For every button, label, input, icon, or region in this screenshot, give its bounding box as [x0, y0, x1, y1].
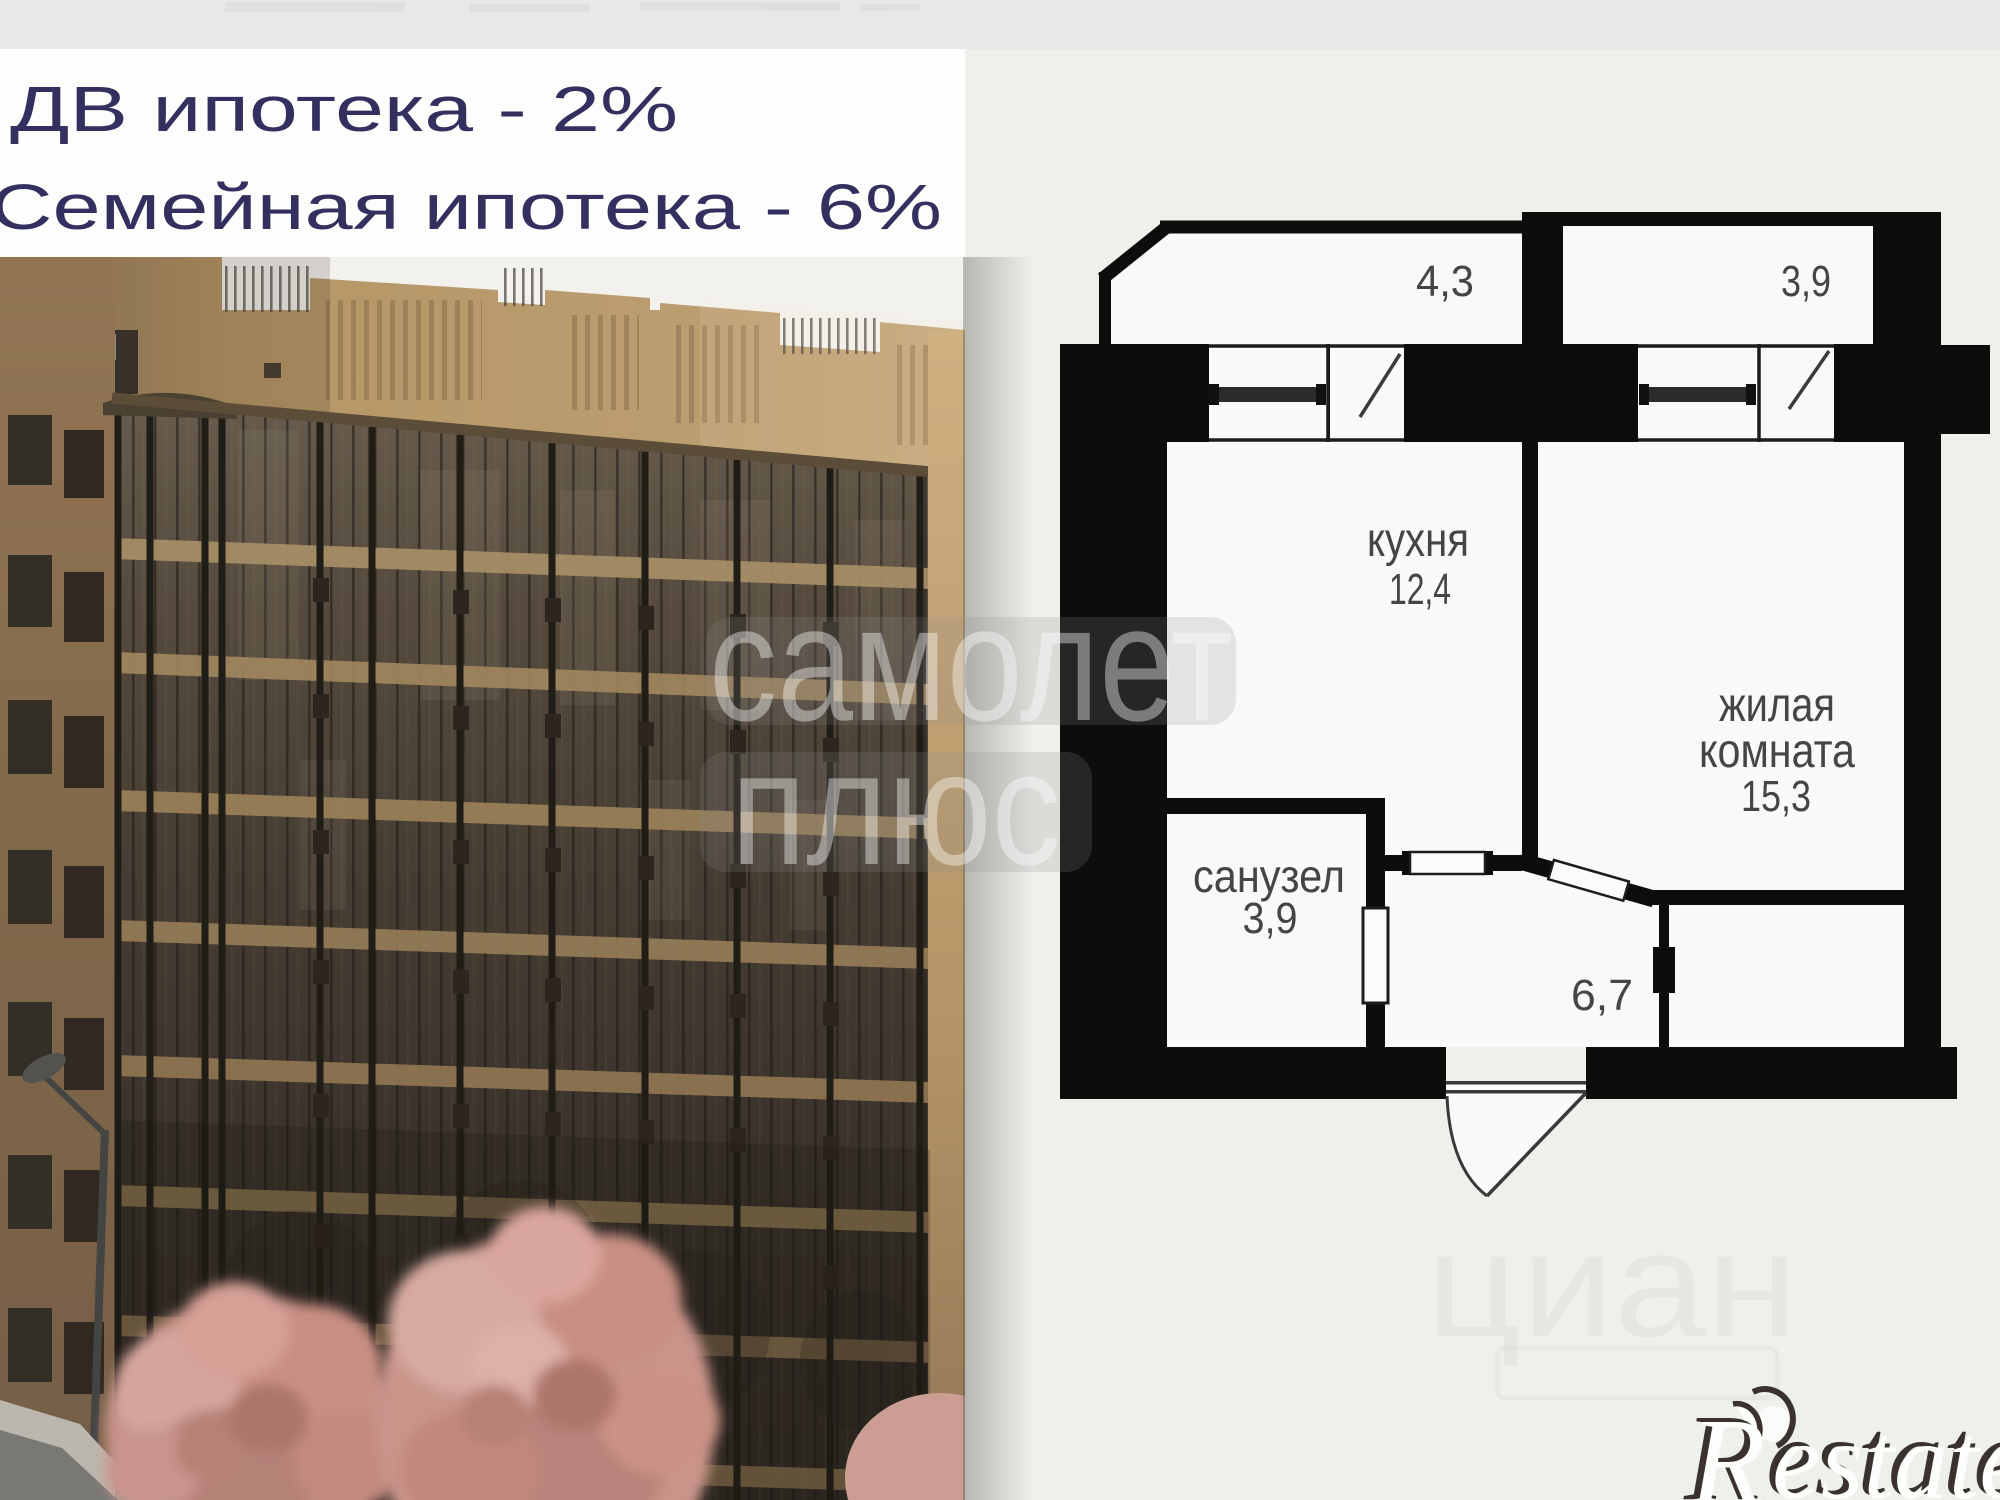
svg-text:15,3: 15,3 — [1741, 772, 1811, 821]
svg-text:4,3: 4,3 — [1416, 257, 1474, 306]
svg-text:циан: циан — [1426, 1200, 1798, 1368]
svg-text:ДВ ипотека - 2%: ДВ ипотека - 2% — [10, 73, 678, 145]
svg-text:estate: estate — [1772, 1400, 2000, 1500]
svg-text:3,9: 3,9 — [1243, 894, 1298, 943]
svg-text:плюс: плюс — [731, 718, 1061, 899]
svg-text:6,7: 6,7 — [1571, 971, 1633, 1020]
svg-text:комната: комната — [1699, 725, 1855, 778]
svg-text:Семейная ипотека - 6%: Семейная ипотека - 6% — [0, 171, 942, 243]
svg-text:кухня: кухня — [1367, 514, 1469, 567]
svg-text:3,9: 3,9 — [1781, 257, 1831, 306]
svg-text:R: R — [1689, 1393, 1766, 1500]
svg-text:12,4: 12,4 — [1389, 565, 1451, 614]
